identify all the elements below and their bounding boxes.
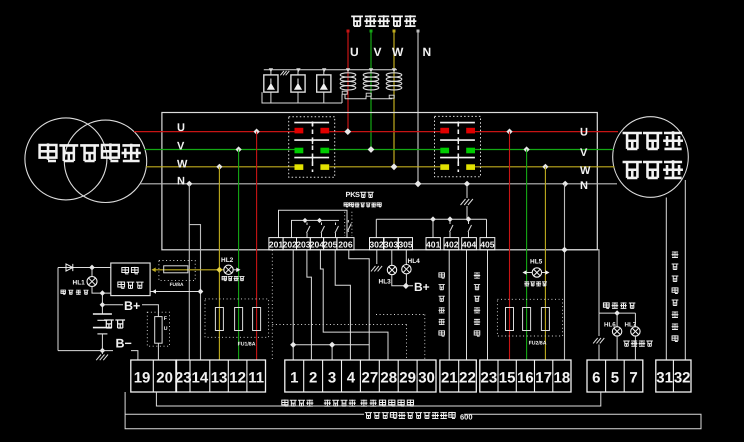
svg-text:N: N: [423, 45, 432, 59]
svg-text:27: 27: [362, 370, 379, 387]
svg-text:17: 17: [535, 370, 552, 387]
svg-text:W: W: [177, 159, 188, 171]
svg-text:600: 600: [460, 413, 473, 422]
svg-text:13: 13: [211, 370, 228, 387]
svg-text:HL4: HL4: [408, 258, 421, 265]
svg-text:F: F: [164, 316, 167, 322]
svg-text:303: 303: [384, 239, 399, 249]
svg-text:29: 29: [399, 370, 416, 387]
svg-text:HL5: HL5: [530, 259, 543, 266]
svg-text:N: N: [177, 176, 185, 188]
svg-text:15: 15: [499, 370, 516, 387]
svg-text:N: N: [580, 180, 588, 192]
svg-text:HL7: HL7: [625, 322, 637, 329]
svg-text:FU1/8A: FU1/8A: [238, 342, 256, 348]
svg-text:U: U: [177, 122, 185, 134]
svg-text:12: 12: [229, 370, 246, 387]
svg-text:B−: B−: [116, 337, 132, 351]
svg-text:31: 31: [656, 370, 673, 387]
svg-text:HL3: HL3: [379, 279, 392, 286]
svg-text:302: 302: [369, 239, 384, 249]
svg-text:205: 205: [323, 239, 338, 249]
svg-text:23: 23: [175, 370, 192, 387]
svg-text:21: 21: [441, 370, 458, 387]
svg-text:B+: B+: [414, 280, 430, 294]
svg-text:6: 6: [592, 370, 600, 387]
svg-text:11: 11: [248, 370, 264, 387]
svg-text:HL6: HL6: [604, 322, 616, 329]
svg-text:5: 5: [611, 370, 619, 387]
svg-text:W: W: [392, 45, 404, 59]
svg-text:401: 401: [426, 239, 441, 249]
svg-text:U: U: [164, 326, 168, 332]
svg-text:HL2: HL2: [221, 257, 234, 264]
svg-text:V: V: [374, 45, 382, 59]
svg-text:FU2/8A: FU2/8A: [529, 341, 547, 347]
svg-text:U: U: [580, 127, 588, 139]
svg-text:B+: B+: [124, 299, 140, 313]
svg-text:202: 202: [283, 239, 298, 249]
svg-text:23: 23: [481, 370, 498, 387]
svg-text:V: V: [177, 141, 185, 153]
svg-text:W: W: [580, 165, 591, 177]
svg-text:405: 405: [480, 239, 495, 249]
svg-text:3: 3: [328, 370, 336, 387]
svg-text:32: 32: [674, 370, 691, 387]
svg-text:22: 22: [459, 370, 476, 387]
svg-text:201: 201: [269, 239, 284, 249]
svg-text:30: 30: [418, 370, 435, 387]
svg-text:305: 305: [398, 239, 413, 249]
svg-text:206: 206: [338, 239, 353, 249]
svg-text:14: 14: [192, 370, 209, 387]
svg-text:FU/8A: FU/8A: [170, 282, 184, 288]
svg-text:203: 203: [296, 239, 311, 249]
svg-text:404: 404: [462, 239, 477, 249]
svg-text:V: V: [580, 147, 588, 159]
svg-text:402: 402: [444, 239, 459, 249]
svg-text:16: 16: [517, 370, 534, 387]
svg-text:2: 2: [309, 370, 317, 387]
svg-text:S: S: [355, 190, 360, 199]
svg-text:4: 4: [347, 370, 356, 387]
svg-text:U: U: [350, 45, 359, 59]
svg-text:1: 1: [290, 370, 298, 387]
svg-text:19: 19: [134, 370, 151, 387]
svg-text:20: 20: [156, 370, 173, 387]
svg-text:28: 28: [380, 370, 397, 387]
svg-text:HL1: HL1: [73, 280, 86, 287]
svg-text:18: 18: [554, 370, 571, 387]
svg-text:7: 7: [629, 370, 637, 387]
